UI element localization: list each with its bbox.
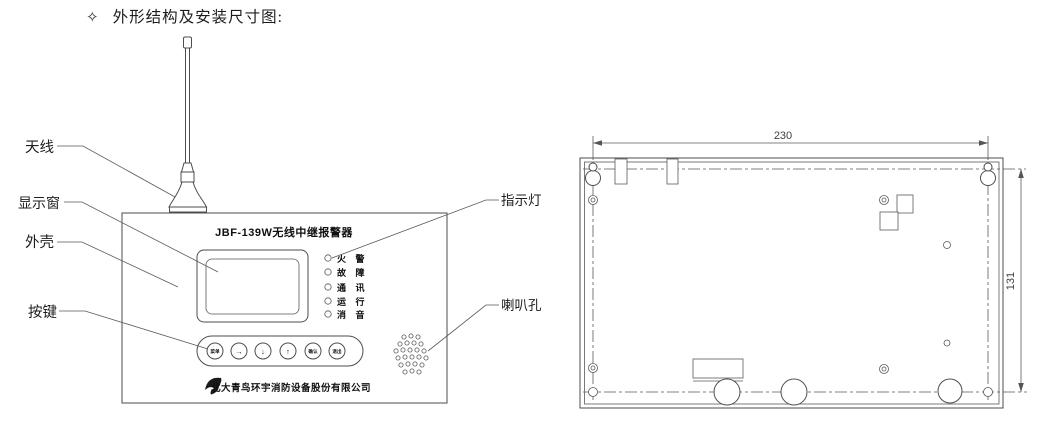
led-label-comm: 通讯: [337, 282, 374, 293]
led-fire: [325, 255, 331, 261]
callout-indicator-light: 指示灯: [501, 193, 542, 208]
key-exit-label: 退出: [332, 348, 342, 355]
led-comm: [325, 284, 331, 290]
led-run: [325, 298, 331, 304]
small-hole-1: [944, 242, 951, 249]
display-window-drawing: [197, 250, 308, 322]
bottom-hole-right: [984, 388, 993, 397]
knockout-circle-2: [781, 379, 807, 405]
antenna-drawing: [169, 37, 207, 212]
dimension-height-value: 131: [1005, 272, 1017, 290]
top-slot-2: [667, 159, 678, 184]
technical-drawing: JBF-139W无线中继报警器 火警 故障 通讯 运行 消音: [0, 0, 1055, 421]
key-right-label: →: [235, 347, 243, 356]
callout-case: 外壳: [25, 234, 54, 251]
top-slot-1: [615, 159, 627, 184]
callout-speaker-hole: 喇叭孔: [501, 298, 542, 313]
manual-page: ✧ 外形结构及安装尺寸图: JBF-139W无线中继报警器: [0, 0, 1055, 421]
dimension-height: 131: [1005, 169, 1024, 392]
keypad-drawing: 菜单 → ↓ ↑ 确认 退出: [197, 336, 363, 366]
led-label-mute: 消音: [337, 309, 374, 320]
bottom-hole-left: [589, 388, 598, 397]
key-menu-label: 菜单: [209, 348, 220, 355]
knockout-circle-3: [938, 379, 962, 403]
device-model-title: JBF-139W无线中继报警器: [215, 225, 353, 239]
callout-antenna: 天线: [25, 139, 54, 156]
led-label-run: 运行: [337, 296, 374, 307]
cable-knockout: [693, 359, 743, 381]
key-confirm-label: 确认: [308, 348, 318, 355]
callout-display-window: 显示窗: [18, 195, 60, 212]
led-fault: [325, 269, 331, 275]
key-down-label: ↓: [261, 347, 265, 356]
rear-view-diagram: 230 131: [580, 130, 1027, 408]
led-mute: [325, 311, 331, 317]
key-up-label: ↑: [286, 347, 290, 356]
mounting-plate-outline: [580, 158, 1003, 408]
led-label-fire: 火警: [337, 253, 374, 264]
dimension-width: 230: [593, 130, 988, 160]
front-view-diagram: JBF-139W无线中继报警器 火警 故障 通讯 运行 消音: [18, 37, 542, 403]
led-label-fault: 故障: [337, 267, 374, 278]
dimension-width-value: 230: [774, 130, 792, 142]
knockout-circle-1: [714, 379, 740, 405]
company-name: 北大青鸟环宇消防设备股份有限公司: [211, 382, 371, 394]
callout-keys: 按键: [28, 304, 57, 321]
small-hole-2: [944, 340, 950, 346]
